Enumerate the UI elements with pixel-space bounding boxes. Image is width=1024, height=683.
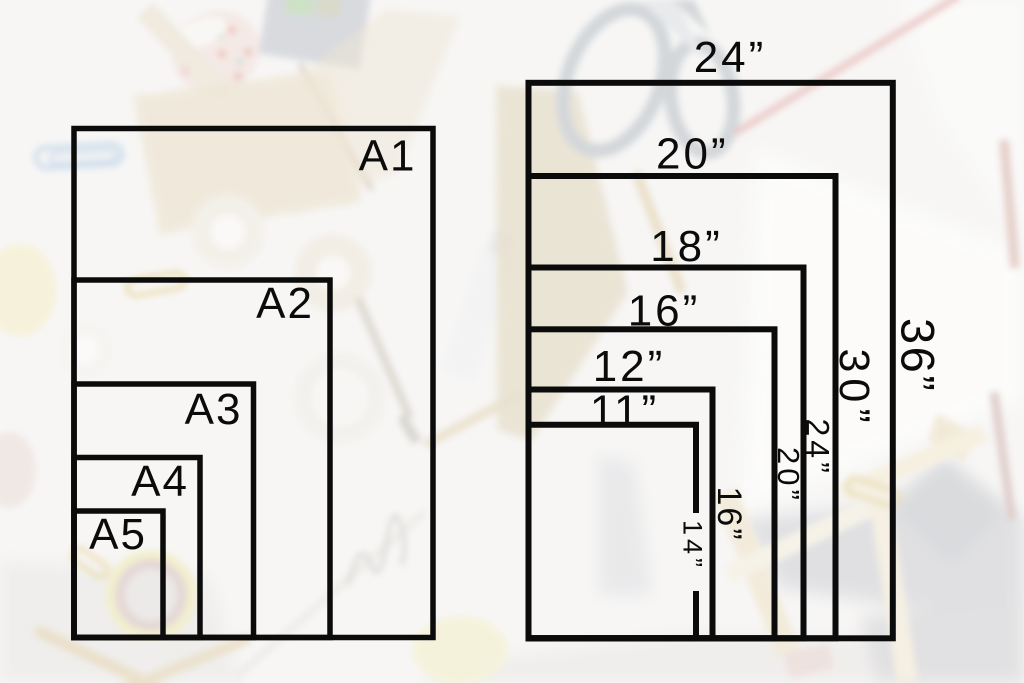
svg-text:11”: 11” <box>590 387 659 436</box>
svg-text:18”: 18” <box>650 222 723 271</box>
svg-text:16”: 16” <box>710 487 748 542</box>
svg-text:A4: A4 <box>131 457 189 506</box>
svg-text:A1: A1 <box>359 132 417 181</box>
svg-text:A2: A2 <box>256 279 314 328</box>
svg-text:16”: 16” <box>628 287 701 336</box>
svg-text:14”: 14” <box>678 520 708 571</box>
svg-text:20”: 20” <box>656 130 729 179</box>
svg-text:20”: 20” <box>771 447 806 504</box>
svg-text:12”: 12” <box>593 342 666 391</box>
svg-text:A3: A3 <box>185 385 243 434</box>
svg-text:36”: 36” <box>891 318 944 393</box>
svg-text:24”: 24” <box>694 33 767 82</box>
svg-text:30”: 30” <box>830 349 878 429</box>
svg-text:A5: A5 <box>89 510 147 559</box>
